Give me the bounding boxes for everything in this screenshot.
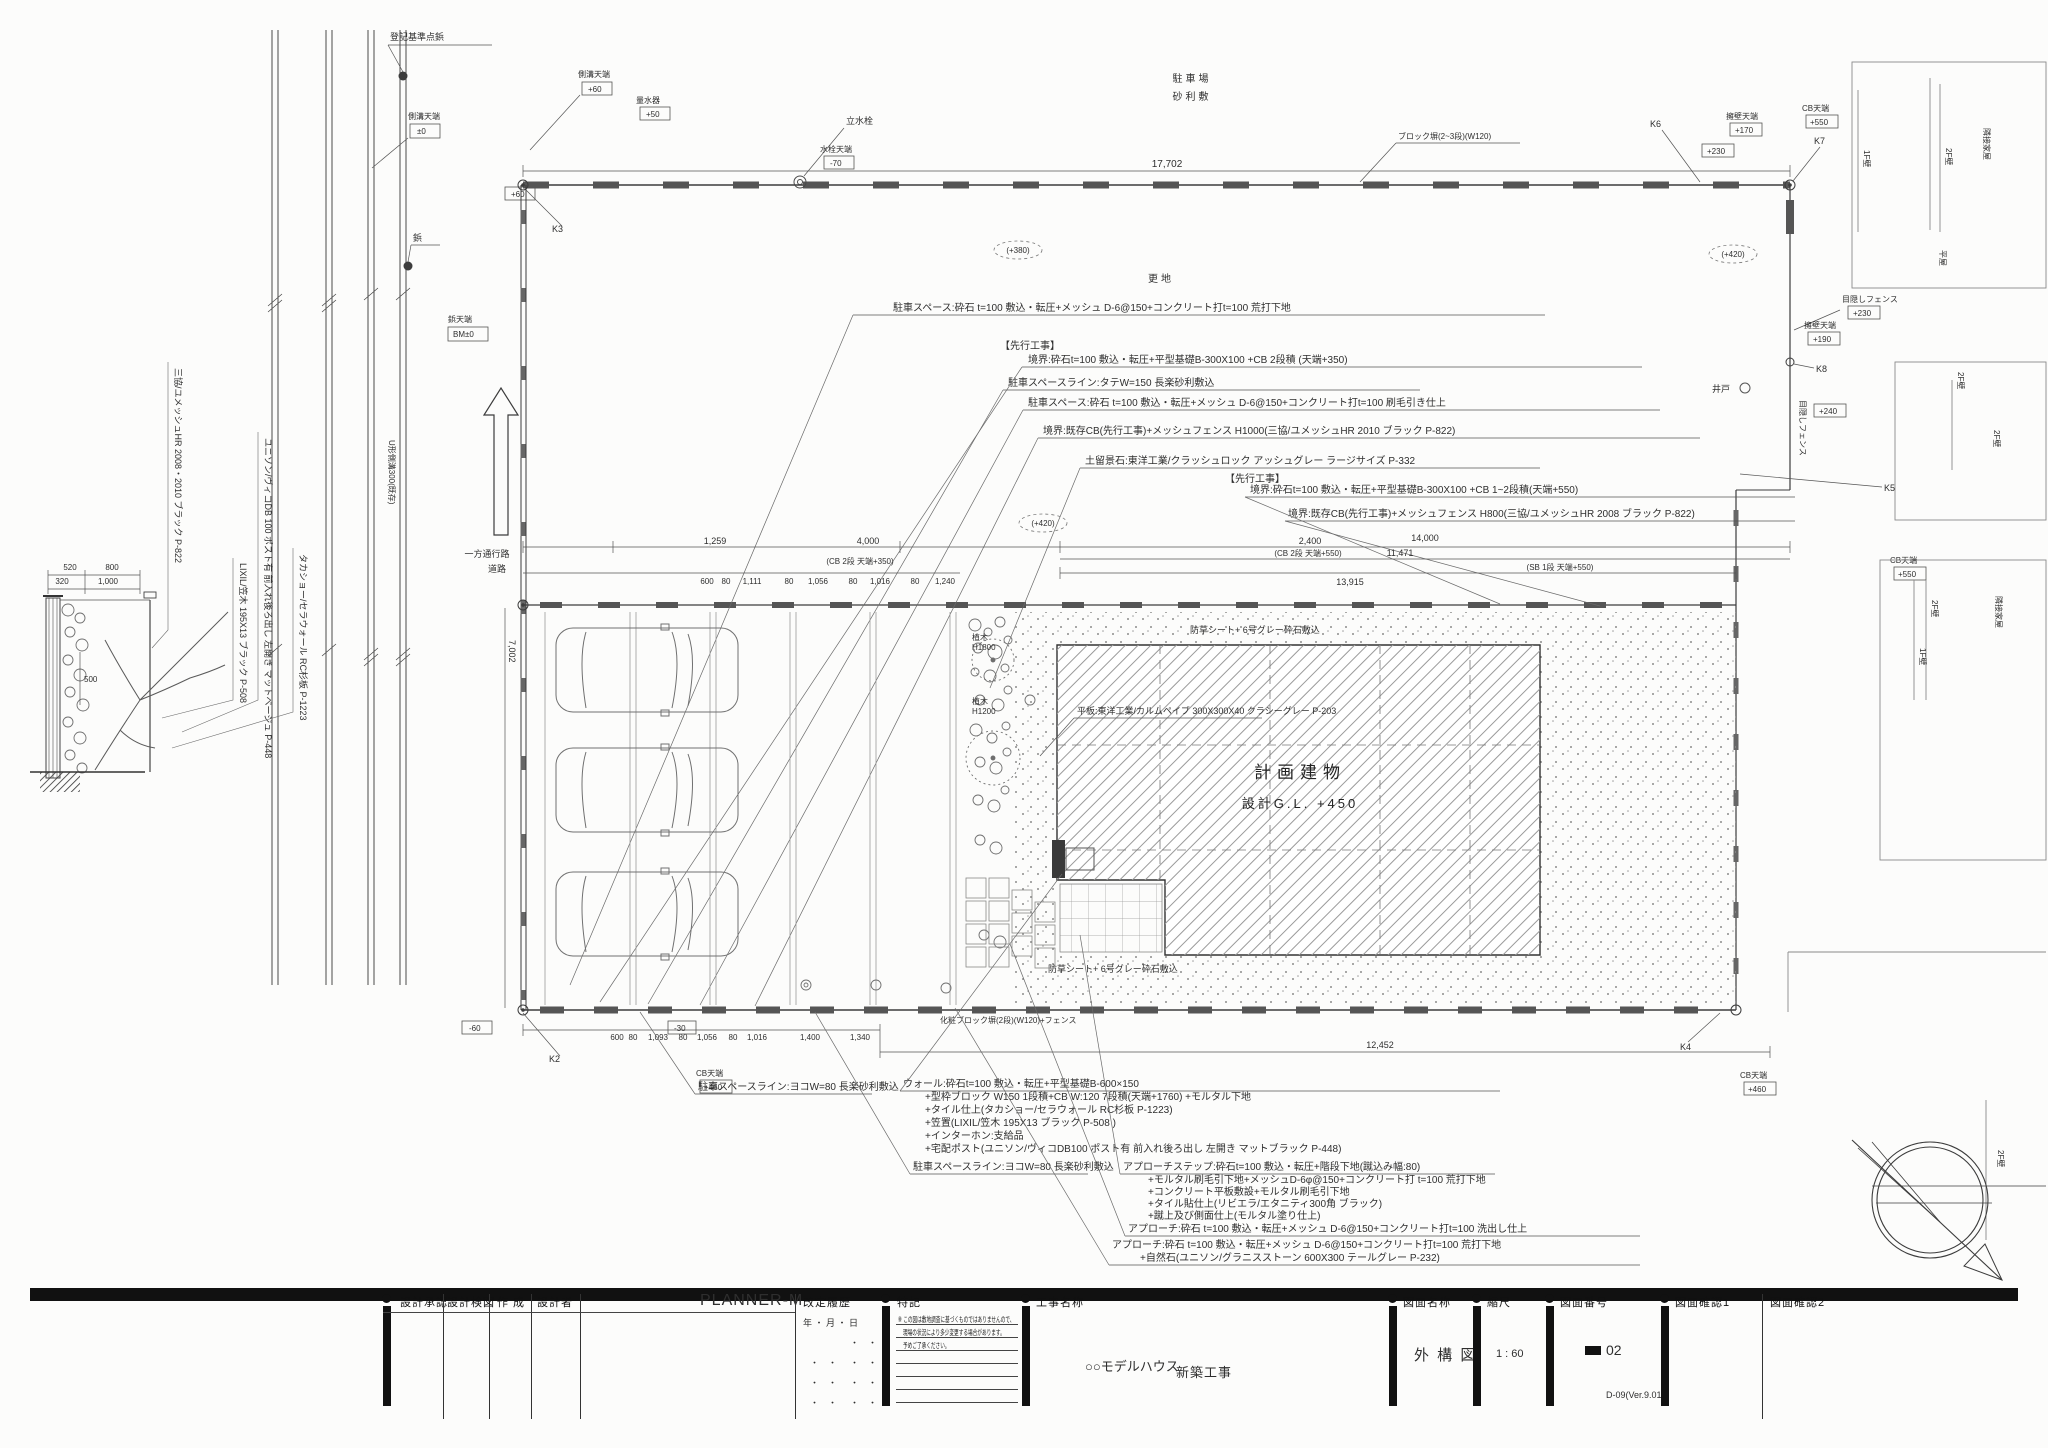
svg-text:1,056: 1,056 [697,1033,718,1042]
svg-text:1F壁: 1F壁 [1862,150,1872,167]
svg-text:井戸: 井戸 [1712,383,1730,394]
svg-text:2F壁: 2F壁 [1944,148,1954,165]
svg-text:登記基準点鋲: 登記基準点鋲 [390,31,444,42]
svg-text:鋲天端: 鋲天端 [448,314,472,324]
plate-note: 平板:東洋工業/カルムペイブ 300X300X40 クラシーグレー P-203 [1077,705,1336,716]
svg-text:CB天端: CB天端 [1802,103,1829,113]
svg-text:80: 80 [629,1033,638,1042]
svg-text:K7: K7 [1814,136,1825,146]
svg-text:タカショー/セラウォール RC杉板 P-1223: タカショー/セラウォール RC杉板 P-1223 [298,554,309,721]
svg-text:1,093: 1,093 [648,1033,669,1042]
svg-text:320: 320 [55,577,69,586]
svg-text:立水栓: 立水栓 [846,115,873,126]
parking-label: 駐車場 [1173,72,1212,85]
svg-text:4,000: 4,000 [857,536,880,546]
road-lines [268,30,410,985]
svg-text:14,000: 14,000 [1411,533,1439,543]
svg-text:1,056: 1,056 [808,577,829,586]
svg-text:CB天端: CB天端 [1740,1070,1767,1080]
svg-text:1,259: 1,259 [704,536,727,546]
svg-text:+240: +240 [1819,407,1838,416]
svg-text:擁壁天端: 擁壁天端 [1804,320,1836,330]
svg-text:+230: +230 [1707,147,1726,156]
svg-text:植木: 植木 [972,632,988,642]
svg-text:駐車スペース:砕石 t=100 敷込・転圧+メッシュ D-6: 駐車スペース:砕石 t=100 敷込・転圧+メッシュ D-6@150+コンクリー… [893,301,1291,314]
svg-text:+宅配ポスト(ユニソン/ヴィコDB100 ポスト有 前入れ後: +宅配ポスト(ユニソン/ヴィコDB100 ポスト有 前入れ後ろ出し 左開き マッ… [925,1142,1341,1155]
svg-text:目隠しフェンス: 目隠しフェンス [1798,400,1808,456]
svg-text:1,340: 1,340 [850,1033,871,1042]
dim-depth: 7,002 [505,608,517,1008]
svg-text:+モルタル刷毛引下地+メッシュD-6φ@150+コンクリート: +モルタル刷毛引下地+メッシュD-6φ@150+コンクリート打 t=100 荒打… [1148,1173,1486,1186]
svg-text:H1200: H1200 [972,707,996,716]
svg-text:アプローチステップ:砕石t=100 敷込・転圧+階段下地(蹴: アプローチステップ:砕石t=100 敷込・転圧+階段下地(蹴込み幅:80) [1123,1160,1420,1173]
svg-text:目隠しフェンス: 目隠しフェンス [1842,294,1898,304]
svg-text:植木: 植木 [972,696,988,706]
north-compass [1852,1140,2046,1280]
svg-text:土留景石:東洋工業/クラッシュロック アッシュグレー ラージ: 土留景石:東洋工業/クラッシュロック アッシュグレー ラージサイズ P-332 [1085,454,1416,467]
svg-text:80: 80 [911,577,920,586]
svg-text:1,111: 1,111 [743,577,762,586]
svg-text:駐車スペース:砕石 t=100 敷込・転圧+メッシュ D-6: 駐車スペース:砕石 t=100 敷込・転圧+メッシュ D-6@150+コンクリー… [1028,396,1446,409]
svg-text:駐車スペースライン:ヨコW=80 長楽砂利敷込: 駐車スペースライン:ヨコW=80 長楽砂利敷込 [698,1080,899,1093]
svg-text:1,016: 1,016 [870,577,891,586]
svg-text:K6: K6 [1650,119,1661,129]
svg-text:13,915: 13,915 [1336,577,1364,587]
svg-text:+60: +60 [588,85,602,94]
svg-text:H1800: H1800 [972,643,996,652]
svg-text:±0: ±0 [417,127,426,136]
one-way-label: 一方通行路 [464,548,509,559]
svg-text:2,400: 2,400 [1299,536,1322,546]
svg-text:K2: K2 [549,1054,560,1064]
gutter-label: U形側溝300(既存) [387,440,397,505]
svg-text:(+380): (+380) [1006,246,1030,255]
svg-text:+蹴上及び側面仕上(モルタル塗り仕上): +蹴上及び側面仕上(モルタル塗り仕上) [1148,1209,1321,1222]
svg-text:駐車スペースライン:ヨコW=80 長楽砂利敷込: 駐車スペースライン:ヨコW=80 長楽砂利敷込 [913,1160,1114,1173]
svg-text:+550: +550 [1898,570,1917,579]
svg-text:+60: +60 [511,190,525,199]
svg-text:1F壁: 1F壁 [1918,648,1928,665]
svg-text:2F壁: 2F壁 [1930,600,1940,617]
block-wall-top-label: ブロック塀(2~3段)(W120) [1398,131,1491,141]
svg-text:+笠置(LIXIL/笠木 195X13 ブラック P-508: +笠置(LIXIL/笠木 195X13 ブラック P-508 ) [925,1116,1116,1129]
vacant-label: 更地 [1148,272,1174,285]
svg-text:駐車スペースライン:タテW=150 長楽砂利敷込: 駐車スペースライン:タテW=150 長楽砂利敷込 [1008,376,1214,389]
svg-text:ユニソン/ヴィコDB 100 ポスト有 前入れ後ろ出し 左開: ユニソン/ヴィコDB 100 ポスト有 前入れ後ろ出し 左開き マットベージュ … [263,438,274,758]
feature-wall [1052,840,1065,878]
svg-text:11,471: 11,471 [1387,548,1414,558]
drawing-sheet: U形側溝300(既存) 一方通行路 道路 登記基準点鋲 側溝天端 ±0 鋲 鋲天… [0,0,2048,1448]
svg-text:CB天端: CB天端 [696,1068,723,1078]
svg-text:設計G.L. +450: 設計G.L. +450 [1242,796,1358,811]
svg-text:+50: +50 [646,110,660,119]
svg-text:+230: +230 [1853,309,1872,318]
svg-text:アプローチ:砕石 t=100 敷込・転圧+メッシュ D-6@: アプローチ:砕石 t=100 敷込・転圧+メッシュ D-6@150+コンクリート… [1112,1238,1501,1251]
svg-text:80: 80 [729,1033,738,1042]
svg-text:12,452: 12,452 [1366,1040,1394,1050]
svg-text:擁壁天端: 擁壁天端 [1726,111,1758,121]
svg-text:+タイル仕上(タカショー/セラウォール RC杉板 P-122: +タイル仕上(タカショー/セラウォール RC杉板 P-1223) [925,1103,1173,1116]
water-tap: 立水栓 水栓天端 -70 [794,115,873,188]
svg-text:隣接家屋: 隣接家屋 [1982,128,1992,160]
svg-text:量水器: 量水器 [636,95,660,105]
svg-text:2F壁: 2F壁 [1992,430,2002,447]
svg-text:水栓天端: 水栓天端 [820,144,852,154]
svg-text:【先行工事】: 【先行工事】 [1225,472,1285,485]
svg-text:+型枠ブロック W150 1段積+CB W:120 7段積(: +型枠ブロック W150 1段積+CB W:120 7段積(天端+1760) +… [925,1090,1251,1103]
svg-text:LIXIL/笠木 195X13 ブラック P-508: LIXIL/笠木 195X13 ブラック P-508 [238,563,249,703]
svg-text:800: 800 [105,563,119,572]
svg-text:80: 80 [849,577,858,586]
left-elevation: 520 800 320 1,000 500 三協/ユメッシュHR 2008・20 [30,362,309,792]
svg-text:+コンクリート平板敷設+モルタル刷毛引下地: +コンクリート平板敷設+モルタル刷毛引下地 [1148,1185,1350,1198]
svg-text:(SB 1段 天端+550): (SB 1段 天端+550) [1527,562,1594,572]
svg-text:平屋: 平屋 [1938,250,1947,266]
svg-text:2F壁: 2F壁 [1956,372,1966,389]
svg-text:1,016: 1,016 [747,1033,768,1042]
svg-text:500: 500 [84,675,98,684]
car-outlines [556,624,738,960]
svg-text:+190: +190 [1813,335,1832,344]
svg-text:600: 600 [700,577,714,586]
svg-text:境界:砕石t=100 敷込・転圧+平型基礎B-300X100: 境界:砕石t=100 敷込・転圧+平型基礎B-300X100 +CB 1~2段積… [1250,483,1578,496]
weedsheet-note-n: 防草シート+ 6号グレー砕石敷込 [1190,624,1320,635]
svg-text:三協/ユメッシュHR 2008・2010 ブラック P-82: 三協/ユメッシュHR 2008・2010 ブラック P-822 [173,368,184,563]
svg-text:K4: K4 [1680,1042,1691,1052]
site-plan-canvas: U形側溝300(既存) 一方通行路 道路 登記基準点鋲 側溝天端 ±0 鋲 鋲天… [0,0,2048,1448]
svg-text:(+420): (+420) [1721,250,1745,259]
svg-text:1,400: 1,400 [800,1033,821,1042]
svg-text:-70: -70 [830,159,842,168]
svg-text:K8: K8 [1816,364,1827,374]
svg-text:600: 600 [610,1033,624,1042]
weedsheet-note-s: 防草シート+ 6号グレー砕石敷込 [1048,963,1178,974]
svg-text:2F壁: 2F壁 [1996,1150,2006,1167]
top-annotations: 駐車スペース:砕石 t=100 敷込・転圧+メッシュ D-6@150+コンクリー… [853,301,1795,521]
svg-text:境界:既存CB(先行工事)+メッシュフェンス H1000(三: 境界:既存CB(先行工事)+メッシュフェンス H1000(三協/ユメッシュHR … [1043,424,1455,437]
svg-text:+自然石(ユニソン/グラニスストーン 600X300 テール: +自然石(ユニソン/グラニスストーン 600X300 テールグレー P-232) [1140,1251,1440,1264]
svg-text:隣接家屋: 隣接家屋 [1994,596,2004,628]
svg-text:80: 80 [785,577,794,586]
dim-top-value: 17,702 [1152,159,1183,170]
dim-bottom: 600 80 1,093 80 1,056 80 1,016 1,400 1,3… [523,1015,1770,1058]
svg-text:アプローチ:砕石 t=100 敷込・転圧+メッシュ D-6@: アプローチ:砕石 t=100 敷込・転圧+メッシュ D-6@150+コンクリート… [1128,1222,1527,1235]
parking-pad [545,612,956,1005]
one-way-arrow [484,388,518,535]
svg-text:1,240: 1,240 [935,577,956,586]
svg-text:(CB 2段 天端+350): (CB 2段 天端+350) [826,556,894,566]
svg-text:+550: +550 [1810,118,1829,127]
svg-text:側溝天端: 側溝天端 [578,69,610,79]
svg-text:【先行工事】: 【先行工事】 [1000,339,1060,352]
svg-text:側溝天端: 側溝天端 [408,111,440,121]
svg-text:+インターホン:支給品: +インターホン:支給品 [925,1129,1024,1142]
svg-text:80: 80 [722,577,731,586]
dim-band: 1,259 4,000 2,400 14,000 11,471 13,915 (… [523,533,1790,587]
svg-text:-30: -30 [674,1024,686,1033]
svg-text:鋲: 鋲 [413,232,422,243]
svg-text:(+420): (+420) [1031,519,1055,528]
svg-text:境界:砕石t=100 敷込・転圧+平型基礎B-300X100: 境界:砕石t=100 敷込・転圧+平型基礎B-300X100 +CB 2段積 (… [1028,353,1348,366]
svg-text:BM±0: BM±0 [453,330,474,339]
svg-text:7,002: 7,002 [507,640,517,663]
svg-text:(CB 2段 天端+550): (CB 2段 天端+550) [1274,548,1342,558]
svg-text:-60: -60 [469,1024,481,1033]
svg-text:境界:既存CB(先行工事)+メッシュフェンス H800(三協: 境界:既存CB(先行工事)+メッシュフェンス H800(三協/ユメッシュHR 2… [1288,507,1695,520]
svg-text:+170: +170 [1735,126,1754,135]
svg-text:K5: K5 [1884,483,1895,493]
svg-text:計画建物: 計画建物 [1254,763,1346,782]
svg-text:+460: +460 [1748,1085,1767,1094]
svg-text:1,000: 1,000 [98,577,119,586]
road-label: 道路 [488,563,506,574]
svg-text:+タイル貼仕上(リビエラ/エタニティ300角 ブラック): +タイル貼仕上(リビエラ/エタニティ300角 ブラック) [1148,1197,1382,1210]
svg-text:520: 520 [63,563,77,572]
gravel-label: 砂利敷 [1173,90,1212,103]
